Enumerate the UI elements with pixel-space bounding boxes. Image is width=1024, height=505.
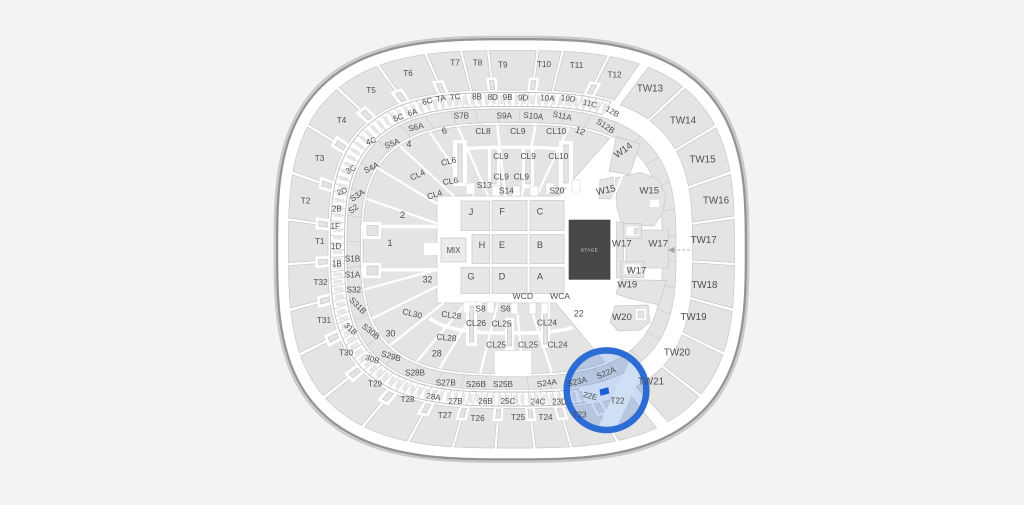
svg-text:TW13: TW13 [637, 83, 664, 94]
svg-text:TW19: TW19 [680, 312, 706, 323]
svg-text:T11: T11 [570, 61, 584, 70]
svg-text:25C: 25C [501, 397, 516, 406]
svg-text:F: F [499, 207, 505, 217]
svg-text:T2: T2 [301, 197, 311, 206]
svg-text:TW18: TW18 [691, 280, 718, 291]
svg-text:TW20: TW20 [664, 348, 691, 359]
svg-text:1B: 1B [332, 259, 342, 268]
svg-text:WCD: WCD [513, 291, 534, 301]
svg-text:T27: T27 [438, 411, 453, 420]
svg-text:S8: S8 [475, 304, 486, 314]
svg-text:9B: 9B [503, 93, 513, 102]
svg-text:CL24: CL24 [537, 317, 557, 327]
svg-text:TW14: TW14 [670, 115, 697, 126]
svg-text:J: J [469, 207, 474, 217]
svg-text:7C: 7C [449, 92, 461, 102]
svg-text:S26B: S26B [466, 380, 487, 389]
svg-text:T4: T4 [337, 116, 347, 125]
svg-text:S28B: S28B [405, 368, 426, 377]
svg-text:W20: W20 [612, 312, 632, 323]
svg-text:CL9: CL9 [521, 151, 537, 161]
svg-text:W17: W17 [627, 266, 647, 277]
svg-text:STAGE: STAGE [581, 248, 598, 253]
svg-text:10D: 10D [560, 93, 576, 104]
svg-text:CL25: CL25 [491, 319, 511, 329]
svg-text:32: 32 [423, 274, 433, 284]
svg-text:10A: 10A [540, 93, 555, 103]
svg-text:T31: T31 [317, 316, 332, 325]
svg-text:A: A [537, 272, 544, 282]
svg-text:CL25: CL25 [486, 340, 506, 350]
svg-text:MIX: MIX [447, 246, 462, 255]
svg-text:4: 4 [407, 139, 412, 149]
svg-text:8D: 8D [488, 93, 498, 102]
svg-text:27B: 27B [448, 397, 462, 406]
svg-text:S27B: S27B [436, 378, 457, 387]
svg-text:TW16: TW16 [703, 195, 730, 206]
svg-text:S14: S14 [499, 186, 514, 196]
svg-text:S1B: S1B [345, 254, 361, 263]
svg-text:CL26: CL26 [466, 318, 486, 328]
svg-text:T32: T32 [313, 278, 328, 287]
svg-text:S7B: S7B [454, 112, 470, 121]
svg-text:22: 22 [574, 309, 584, 319]
svg-text:CL10: CL10 [548, 151, 568, 161]
svg-text:W15: W15 [639, 185, 659, 196]
svg-text:T25: T25 [511, 413, 526, 422]
svg-text:T26: T26 [471, 414, 486, 423]
svg-text:CL9: CL9 [510, 126, 526, 136]
svg-text:H: H [479, 240, 486, 250]
svg-text:T5: T5 [366, 86, 376, 95]
svg-text:S1A: S1A [345, 270, 361, 279]
svg-text:CL28: CL28 [436, 331, 457, 343]
svg-text:9D: 9D [518, 93, 528, 102]
svg-text:CL10: CL10 [546, 126, 566, 136]
svg-text:T23: T23 [572, 410, 587, 419]
svg-text:S6: S6 [500, 303, 511, 313]
svg-text:CL9: CL9 [494, 172, 510, 182]
svg-text:1F: 1F [331, 222, 340, 231]
svg-text:CL8: CL8 [475, 126, 491, 136]
svg-text:1D: 1D [331, 242, 341, 251]
svg-text:T29: T29 [368, 379, 383, 388]
svg-text:T12: T12 [607, 70, 622, 79]
svg-text:2B: 2B [332, 205, 342, 214]
svg-text:S9A: S9A [497, 112, 513, 121]
svg-text:2: 2 [400, 210, 405, 221]
svg-text:S20: S20 [549, 186, 564, 196]
svg-text:T10: T10 [537, 60, 552, 69]
svg-text:TW17: TW17 [691, 235, 717, 246]
svg-text:28: 28 [432, 349, 442, 359]
svg-text:T8: T8 [473, 58, 483, 67]
svg-text:CL9: CL9 [514, 172, 530, 182]
svg-text:S25B: S25B [493, 380, 514, 389]
svg-text:T22: T22 [610, 396, 625, 405]
svg-text:S32: S32 [347, 285, 362, 294]
svg-text:1: 1 [387, 238, 392, 249]
svg-text:TW21: TW21 [638, 376, 664, 387]
svg-text:WCA: WCA [550, 291, 570, 301]
svg-text:T7: T7 [450, 58, 460, 67]
svg-text:CL9: CL9 [493, 151, 509, 161]
svg-text:T28: T28 [400, 395, 415, 404]
svg-text:S13: S13 [477, 180, 492, 190]
svg-text:T30: T30 [339, 348, 354, 357]
svg-text:8B: 8B [472, 93, 482, 102]
svg-text:B: B [537, 240, 543, 250]
svg-text:T9: T9 [498, 61, 508, 70]
svg-text:W17: W17 [648, 239, 668, 250]
svg-text:W17: W17 [612, 239, 632, 250]
svg-text:C: C [537, 207, 544, 217]
svg-text:30: 30 [386, 329, 396, 339]
svg-text:T24: T24 [538, 413, 553, 422]
svg-text:E: E [499, 240, 505, 250]
svg-text:G: G [467, 272, 474, 282]
svg-text:T6: T6 [403, 69, 413, 78]
svg-text:24C: 24C [531, 398, 546, 407]
svg-text:T3: T3 [315, 154, 325, 163]
svg-text:26B: 26B [478, 397, 492, 406]
svg-text:TW15: TW15 [689, 154, 716, 165]
svg-text:CL25: CL25 [518, 340, 538, 350]
svg-text:CL24: CL24 [547, 339, 567, 349]
svg-text:D: D [499, 272, 506, 282]
svg-text:23D: 23D [552, 398, 567, 407]
svg-text:W19: W19 [618, 280, 638, 291]
svg-text:T1: T1 [315, 237, 325, 246]
